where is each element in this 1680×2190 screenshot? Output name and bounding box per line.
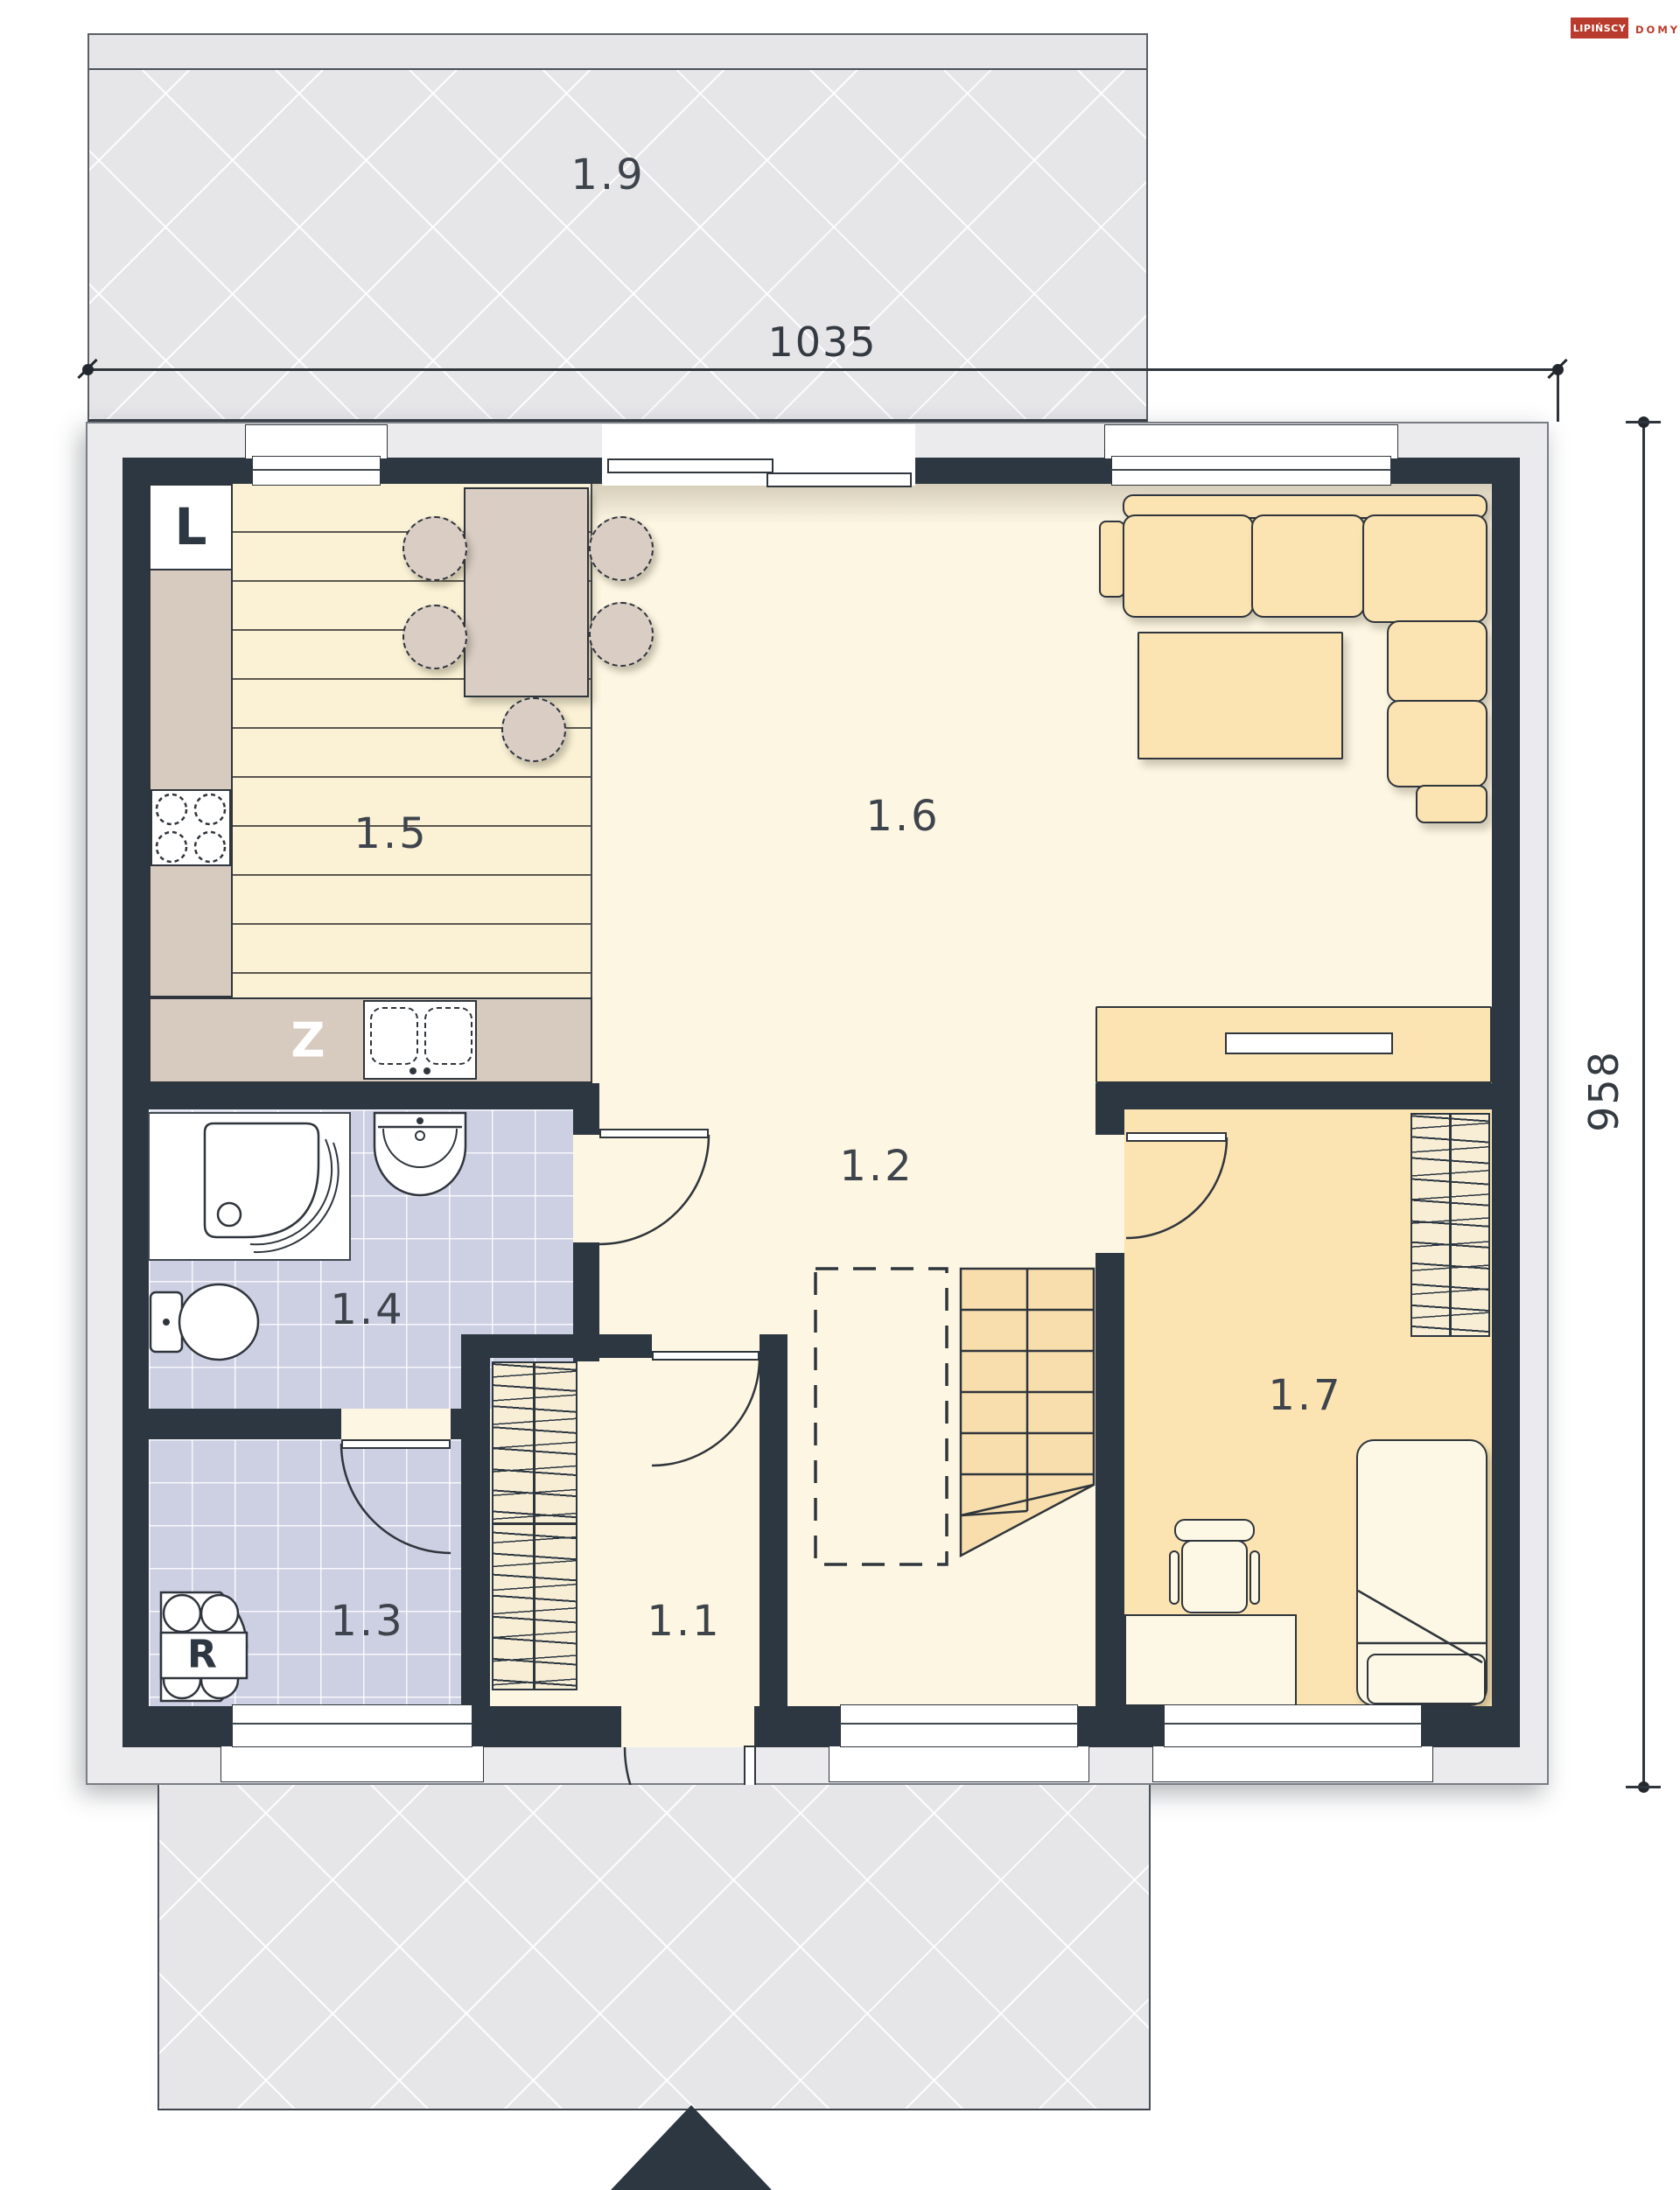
floor-plan: 1035 958 L Z — [0, 0, 1680, 2190]
room-label-1-9: 1.9 — [570, 150, 645, 199]
stairs — [961, 1269, 1094, 1556]
room-label-1-7: 1.7 — [1268, 1371, 1342, 1420]
stove-burners — [157, 794, 225, 862]
washbasin — [374, 1113, 465, 1195]
room-label-1-2: 1.2 — [839, 1142, 913, 1191]
room-label-1-4: 1.4 — [330, 1285, 404, 1334]
room-label-1-5: 1.5 — [353, 809, 428, 858]
shower — [149, 1113, 350, 1260]
room-label-1-6: 1.6 — [865, 792, 940, 841]
logo-word: DOMY — [1635, 24, 1680, 36]
room-label-1-3: 1.3 — [330, 1597, 404, 1646]
logo: LIPIŃSCY — [1571, 17, 1628, 38]
terrace-south — [157, 1785, 1151, 2110]
room-label-1-1: 1.1 — [647, 1597, 721, 1646]
bed-fold — [1358, 1591, 1487, 1662]
toilet — [150, 1284, 258, 1360]
boiler-label: R — [187, 1633, 217, 1677]
entrance-arrow — [611, 2105, 772, 2190]
logo-brand: LIPIŃSCY — [1573, 23, 1626, 34]
stair-void-dashed — [815, 1269, 947, 1564]
